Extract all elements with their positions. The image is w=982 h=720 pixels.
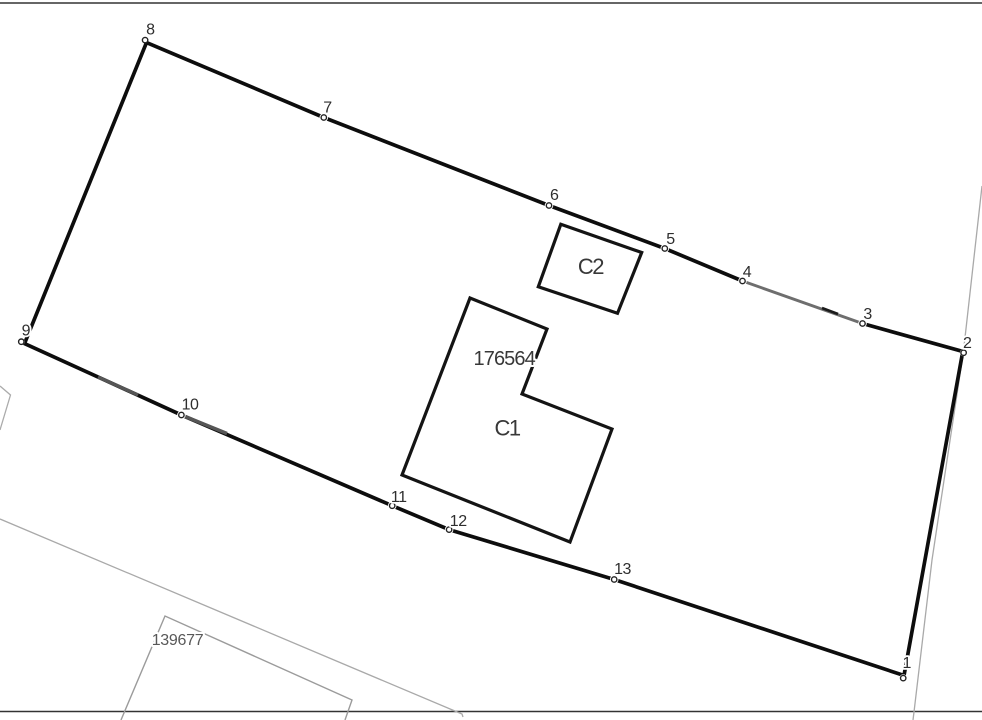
svg-text:11: 11 <box>391 489 407 506</box>
svg-text:8: 8 <box>146 22 155 39</box>
svg-text:3: 3 <box>863 306 872 323</box>
svg-text:2: 2 <box>963 335 972 352</box>
svg-text:6: 6 <box>550 187 559 204</box>
svg-text:10: 10 <box>182 397 199 414</box>
svg-text:4: 4 <box>743 264 752 281</box>
svg-text:12: 12 <box>450 513 467 530</box>
svg-text:13: 13 <box>614 561 631 578</box>
svg-text:9: 9 <box>22 323 31 340</box>
svg-text:C1: C1 <box>494 416 520 441</box>
svg-text:C2: C2 <box>578 254 604 279</box>
svg-text:176564: 176564 <box>474 348 536 370</box>
svg-text:139677: 139677 <box>152 632 204 649</box>
svg-text:5: 5 <box>666 231 675 248</box>
svg-text:1: 1 <box>902 655 911 672</box>
svg-text:7: 7 <box>323 100 332 117</box>
